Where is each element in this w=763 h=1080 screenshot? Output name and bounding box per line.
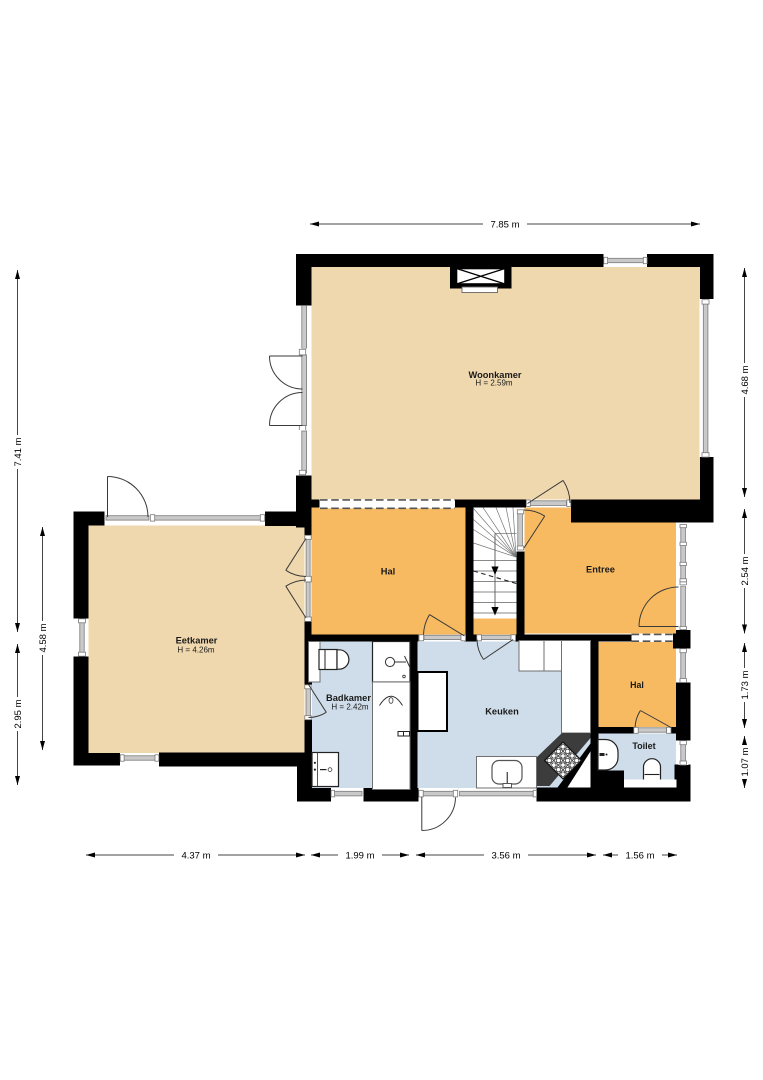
svg-text:2.54 m: 2.54 m <box>740 556 751 585</box>
svg-text:1.99 m: 1.99 m <box>345 851 374 862</box>
svg-text:2.95 m: 2.95 m <box>13 699 24 728</box>
svg-text:Entree: Entree <box>586 565 615 575</box>
svg-text:H = 2.42m: H = 2.42m <box>331 703 368 712</box>
svg-text:H = 2.59m: H = 2.59m <box>475 379 512 388</box>
svg-text:Hal: Hal <box>630 680 644 690</box>
svg-text:4.58 m: 4.58 m <box>38 623 49 652</box>
svg-text:Keuken: Keuken <box>485 707 519 717</box>
svg-text:7.85 m: 7.85 m <box>490 220 519 231</box>
svg-text:4.68 m: 4.68 m <box>740 365 751 394</box>
svg-text:3.56 m: 3.56 m <box>491 851 520 862</box>
svg-text:Badkamer: Badkamer <box>326 693 371 703</box>
svg-text:4.37 m: 4.37 m <box>181 851 210 862</box>
svg-text:Eetkamer: Eetkamer <box>176 636 218 646</box>
svg-text:Hal: Hal <box>381 567 395 577</box>
svg-text:1.56 m: 1.56 m <box>625 851 654 862</box>
svg-text:7.41 m: 7.41 m <box>13 437 24 466</box>
svg-text:H = 4.26m: H = 4.26m <box>177 646 214 655</box>
svg-text:1.73 m: 1.73 m <box>740 670 751 699</box>
svg-text:Toilet: Toilet <box>632 741 655 751</box>
svg-text:1.07 m: 1.07 m <box>740 747 751 776</box>
